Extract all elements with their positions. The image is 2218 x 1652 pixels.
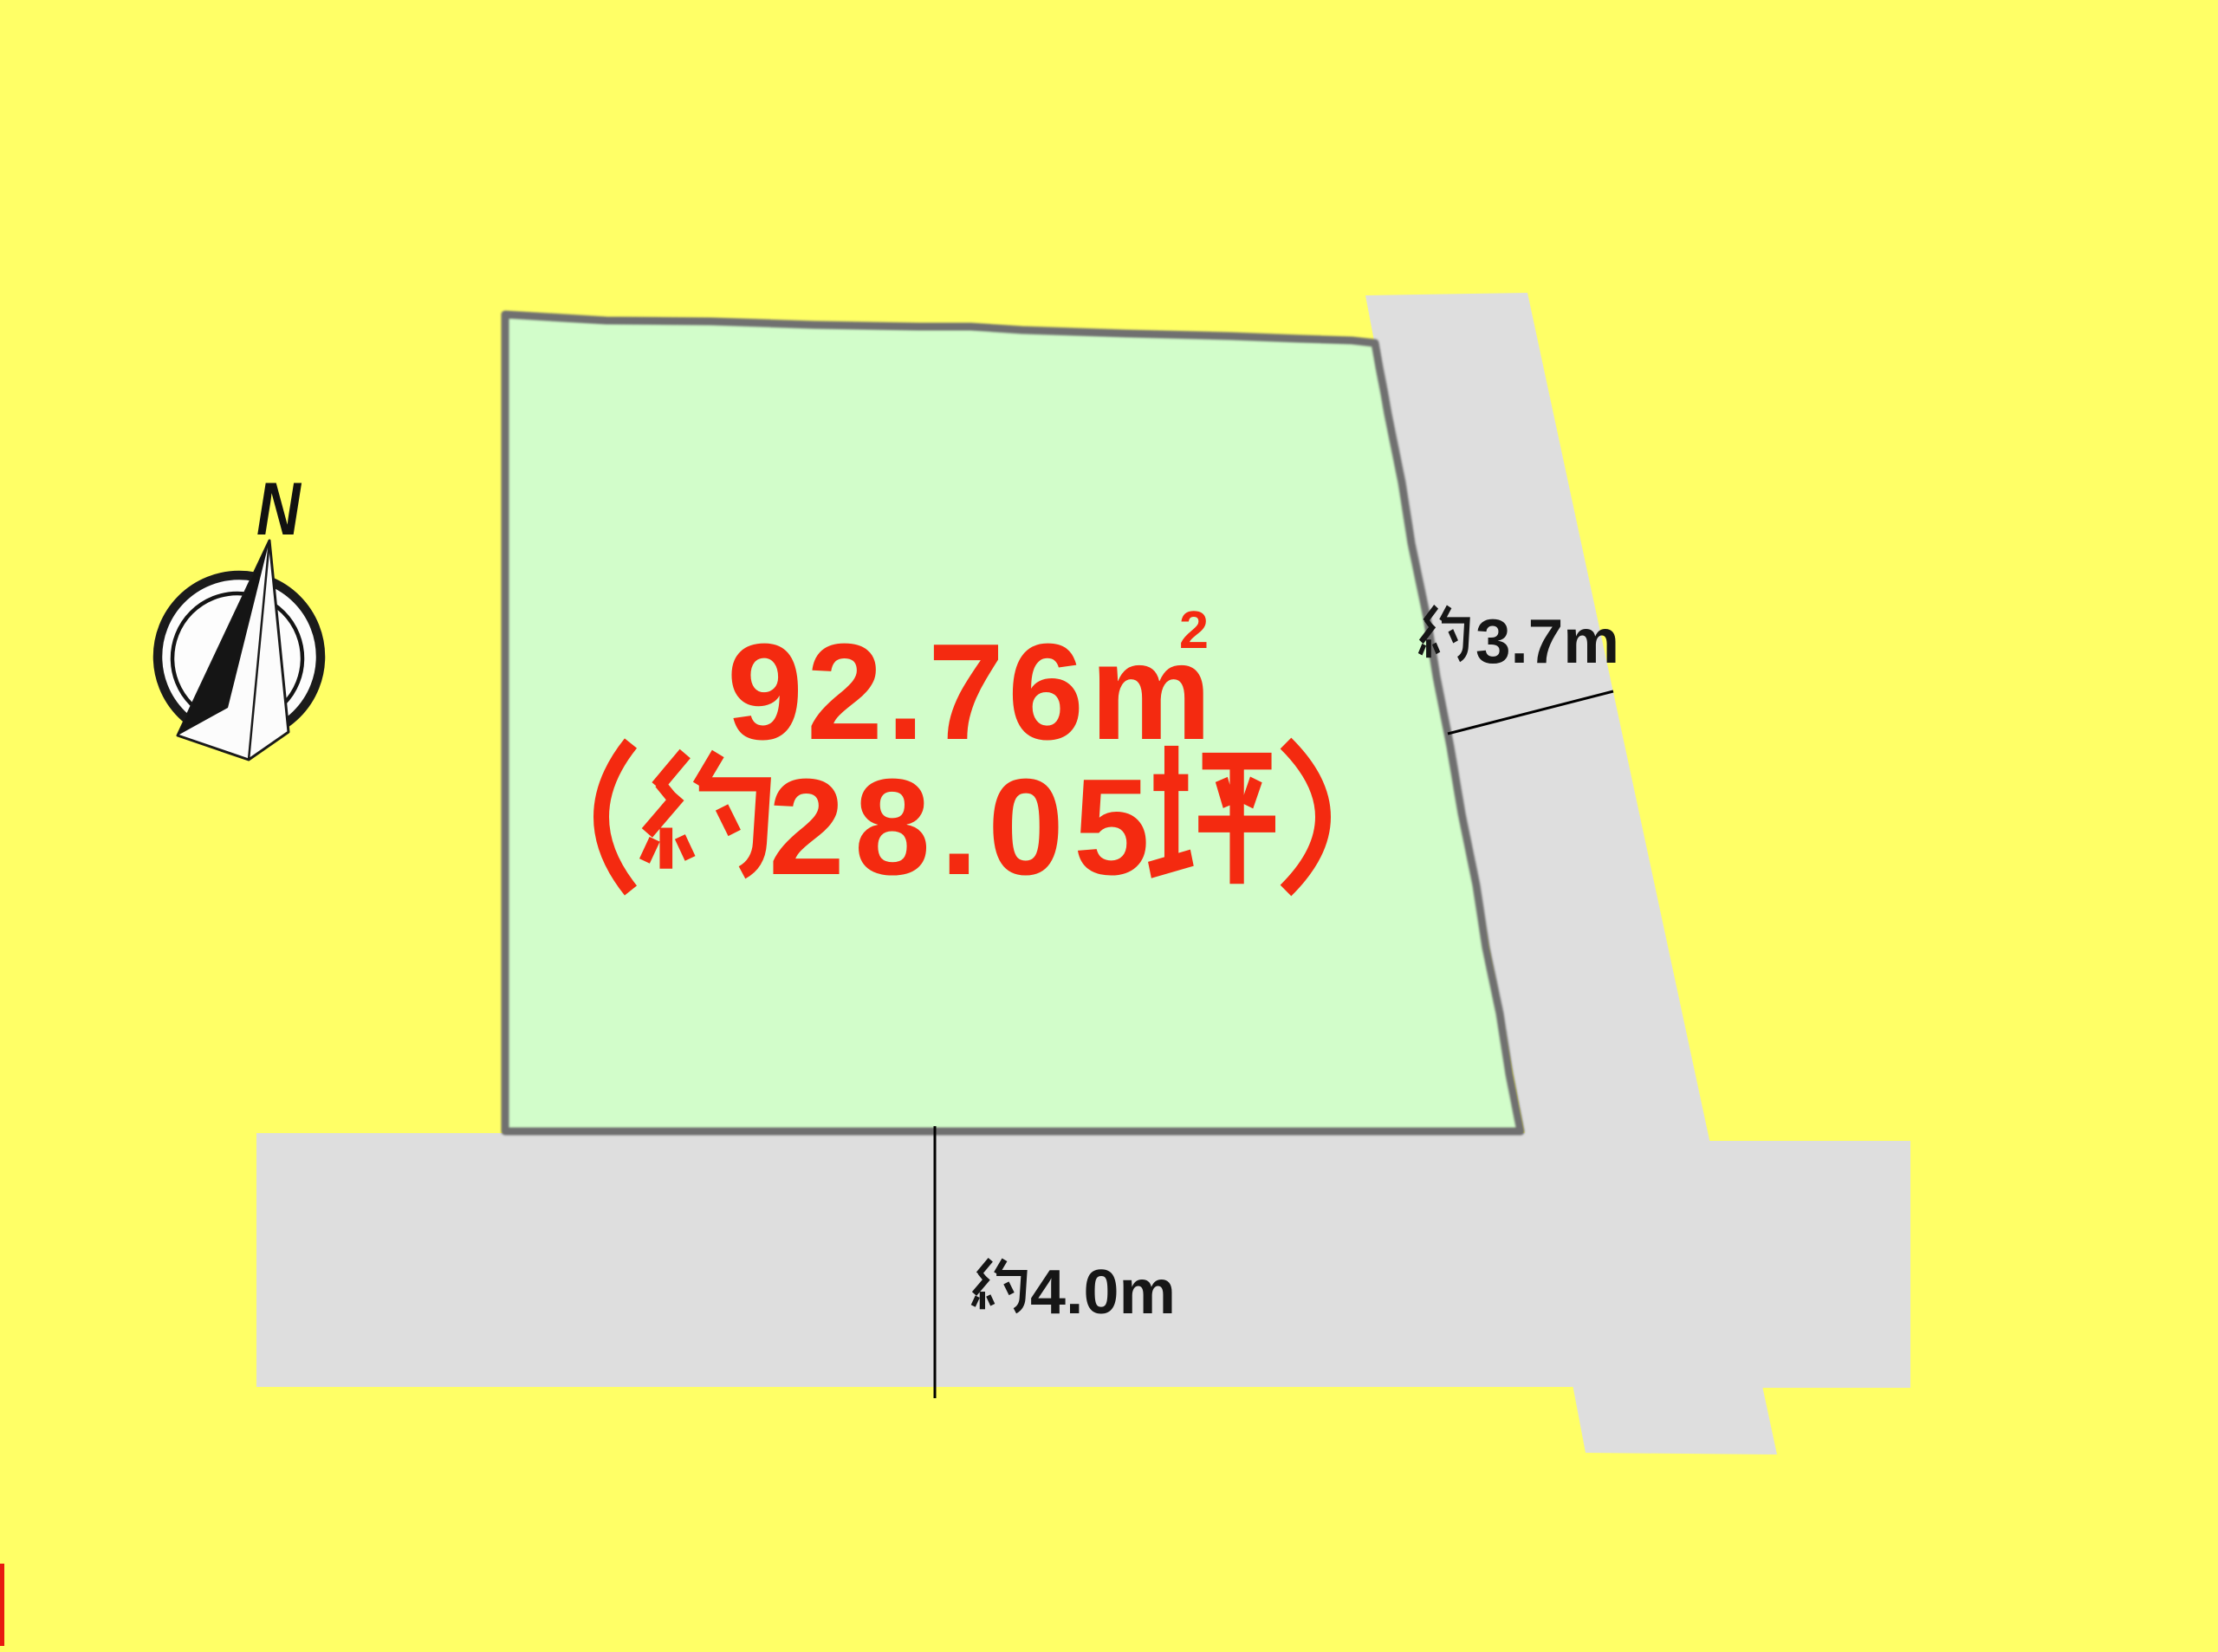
- svg-text:4.0m: 4.0m: [1030, 1258, 1176, 1327]
- svg-text:2: 2: [1179, 600, 1209, 659]
- svg-text:28.05: 28.05: [769, 751, 1150, 904]
- svg-text:N: N: [256, 467, 302, 550]
- svg-text:92.76: 92.76: [727, 616, 1084, 768]
- svg-text:3.7m: 3.7m: [1475, 607, 1619, 677]
